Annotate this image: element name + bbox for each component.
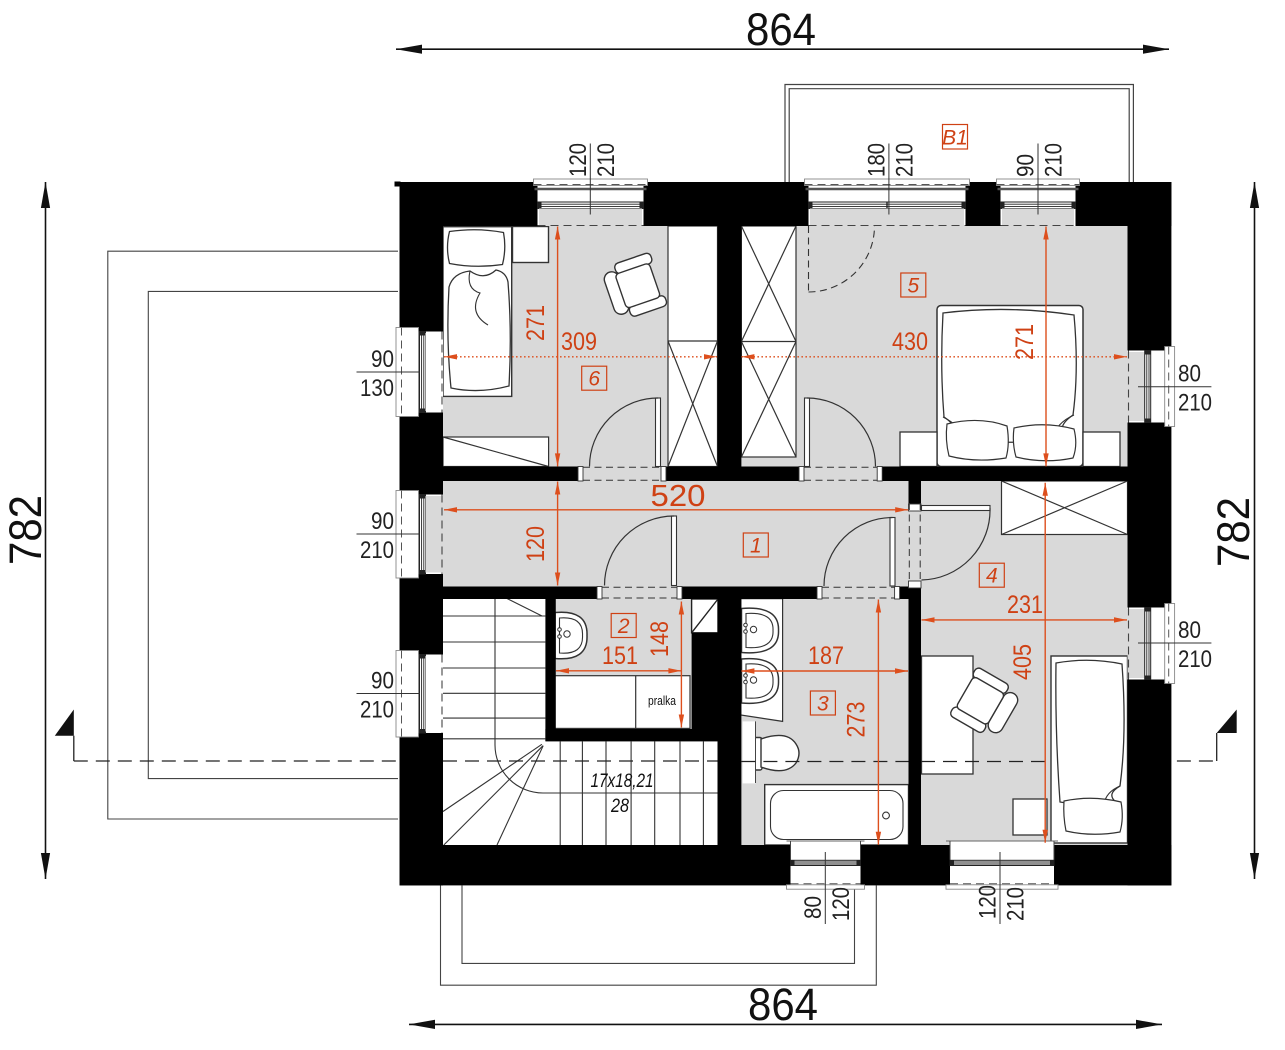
svg-text:130: 130 bbox=[360, 375, 394, 402]
svg-text:90: 90 bbox=[371, 508, 394, 535]
svg-text:187: 187 bbox=[808, 642, 844, 670]
svg-text:120: 120 bbox=[828, 887, 855, 921]
svg-text:210: 210 bbox=[891, 143, 918, 177]
svg-text:80: 80 bbox=[1178, 361, 1201, 388]
svg-text:210: 210 bbox=[360, 697, 394, 724]
svg-text:4: 4 bbox=[986, 565, 998, 588]
svg-text:271: 271 bbox=[522, 305, 550, 341]
svg-text:6: 6 bbox=[588, 368, 600, 391]
svg-text:148: 148 bbox=[646, 621, 674, 657]
svg-text:231: 231 bbox=[1007, 591, 1043, 619]
svg-text:405: 405 bbox=[1009, 644, 1037, 680]
svg-text:180: 180 bbox=[863, 143, 890, 177]
svg-text:210: 210 bbox=[1178, 390, 1212, 417]
svg-text:120: 120 bbox=[522, 526, 550, 562]
svg-text:151: 151 bbox=[602, 642, 638, 670]
svg-text:B1: B1 bbox=[942, 127, 968, 150]
svg-text:2: 2 bbox=[617, 615, 630, 638]
svg-text:3: 3 bbox=[817, 693, 829, 716]
svg-text:271: 271 bbox=[1011, 324, 1039, 360]
svg-text:80: 80 bbox=[1178, 617, 1201, 644]
svg-text:28: 28 bbox=[610, 796, 629, 817]
svg-text:90: 90 bbox=[371, 346, 394, 373]
svg-text:210: 210 bbox=[1003, 887, 1030, 921]
svg-text:pralka: pralka bbox=[648, 694, 676, 708]
svg-text:90: 90 bbox=[371, 668, 394, 695]
svg-text:864: 864 bbox=[748, 979, 818, 1030]
svg-text:520: 520 bbox=[651, 478, 706, 513]
svg-text:864: 864 bbox=[746, 4, 816, 55]
svg-text:80: 80 bbox=[800, 896, 827, 919]
svg-text:273: 273 bbox=[843, 702, 871, 738]
svg-text:17x18,21: 17x18,21 bbox=[591, 771, 654, 792]
svg-text:1: 1 bbox=[750, 535, 762, 558]
svg-text:120: 120 bbox=[975, 885, 1002, 919]
svg-text:90: 90 bbox=[1013, 154, 1040, 177]
svg-text:210: 210 bbox=[1178, 646, 1212, 673]
svg-text:120: 120 bbox=[565, 143, 592, 177]
svg-text:210: 210 bbox=[1041, 143, 1068, 177]
svg-text:782: 782 bbox=[1208, 497, 1259, 567]
svg-text:782: 782 bbox=[0, 495, 51, 565]
svg-text:5: 5 bbox=[907, 275, 919, 298]
svg-text:430: 430 bbox=[892, 328, 928, 356]
svg-text:309: 309 bbox=[561, 328, 597, 356]
svg-text:210: 210 bbox=[593, 143, 620, 177]
svg-text:210: 210 bbox=[360, 537, 394, 564]
